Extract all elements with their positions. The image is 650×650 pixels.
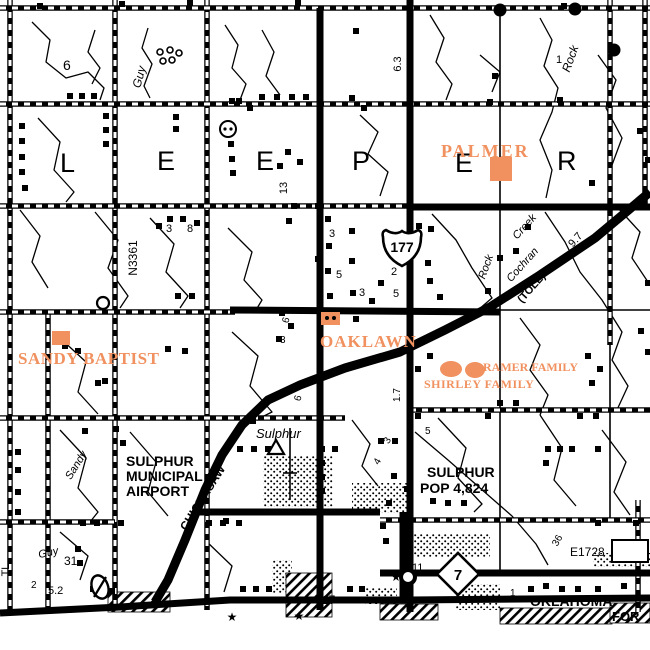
- creek-line: [262, 30, 280, 95]
- town-circle-icon: [97, 297, 109, 309]
- small-site-circle: [167, 47, 173, 53]
- building-square: [561, 3, 567, 9]
- map-label: Guy: [37, 545, 61, 561]
- map-label: Sandy: [63, 448, 90, 482]
- small-site-circle: [169, 57, 175, 63]
- poi-label-ramer-family: RAMER FAMILY: [483, 360, 578, 374]
- building-square: [15, 449, 21, 455]
- building-square: [621, 583, 627, 589]
- building-square: [380, 523, 386, 529]
- poi-marker-sandy-baptist: [52, 331, 70, 345]
- building-square: [82, 428, 88, 434]
- building-square: [223, 518, 229, 524]
- building-square: [297, 159, 303, 165]
- junction-dot: [608, 44, 621, 57]
- map-label: OKLAHOMA: [530, 593, 612, 609]
- building-square: [173, 114, 179, 120]
- star-icon: ★: [391, 570, 402, 584]
- building-square: [326, 243, 332, 249]
- building-square: [173, 126, 179, 132]
- building-square: [545, 446, 551, 452]
- building-square: [577, 413, 583, 419]
- building-square: [187, 0, 193, 6]
- building-square: [445, 500, 451, 506]
- map-label: 17: [322, 593, 336, 607]
- building-square: [430, 498, 436, 504]
- building-square: [428, 226, 434, 232]
- building-square: [361, 105, 367, 111]
- building-square: [113, 426, 119, 432]
- building-square: [274, 94, 280, 100]
- building-square: [427, 278, 433, 284]
- building-square: [291, 203, 297, 209]
- small-site-circle: [160, 58, 166, 64]
- building-square: [487, 99, 493, 105]
- building-square: [416, 223, 422, 229]
- building-square: [102, 378, 108, 384]
- building-square: [369, 298, 375, 304]
- building-square: [194, 220, 200, 226]
- building-square: [353, 316, 359, 322]
- building-square: [319, 460, 325, 466]
- building-square: [109, 588, 115, 594]
- junction-dot: [494, 4, 507, 17]
- building-square: [638, 328, 644, 334]
- building-square: [67, 93, 73, 99]
- hatched-area: [500, 608, 612, 624]
- building-square: [19, 138, 25, 144]
- building-square: [103, 113, 109, 119]
- building-square: [19, 169, 25, 175]
- building-square: [575, 586, 581, 592]
- township-letter: E: [157, 146, 175, 176]
- building-square: [22, 185, 28, 191]
- building-square: [485, 288, 491, 294]
- map-label: 3: [329, 228, 335, 240]
- building-square: [279, 310, 285, 316]
- township-letter: E: [256, 146, 274, 176]
- map-label: 3: [359, 287, 365, 299]
- building-square: [492, 73, 498, 79]
- site-outline-box: [612, 540, 648, 562]
- building-square: [359, 586, 365, 592]
- building-square: [332, 446, 338, 452]
- cemetery-dot: [223, 127, 226, 130]
- map-label: 8: [187, 223, 193, 235]
- building-square: [230, 170, 236, 176]
- building-square: [240, 586, 246, 592]
- building-square: [37, 3, 43, 9]
- map-label: N3361: [126, 240, 140, 276]
- cemetery-dot: [229, 127, 232, 130]
- map-label: Guy: [130, 64, 149, 90]
- building-square: [253, 586, 259, 592]
- map-label: TL: [0, 564, 12, 577]
- urban-area: [410, 533, 490, 557]
- building-square: [597, 366, 603, 372]
- building-square: [15, 467, 21, 473]
- building-square: [543, 583, 549, 589]
- building-square: [645, 349, 650, 355]
- map-canvas[interactable]: ★★★17776GuyRock16.31338N336135235RockCre…: [0, 0, 650, 650]
- building-square: [19, 154, 25, 160]
- map-label: 1: [556, 54, 562, 66]
- building-square: [415, 413, 421, 419]
- building-square: [250, 418, 256, 424]
- map-label: 6: [63, 57, 71, 73]
- map-label: Creek: [510, 212, 539, 242]
- building-square: [349, 258, 355, 264]
- township-letter: P: [352, 146, 370, 176]
- building-square: [182, 348, 188, 354]
- building-square: [75, 546, 81, 552]
- building-square: [247, 105, 253, 111]
- building-square: [386, 500, 392, 506]
- map-label: 6: [281, 316, 293, 325]
- junction-dot: [569, 3, 582, 16]
- building-square: [349, 95, 355, 101]
- building-square: [251, 446, 257, 452]
- building-square: [303, 94, 309, 100]
- building-square: [595, 586, 601, 592]
- map-label: E1728: [570, 545, 605, 559]
- poi-marker-shirley: [440, 361, 462, 377]
- cemetery-icon: [220, 121, 236, 137]
- building-square: [156, 223, 162, 229]
- poi-label-shirley-family: SHIRLEY FAMILY: [424, 377, 534, 391]
- map-label: 5.2: [48, 585, 63, 597]
- township-letter: L: [60, 148, 75, 178]
- building-square: [236, 98, 242, 104]
- building-square: [497, 400, 503, 406]
- building-square: [79, 93, 85, 99]
- building-square: [15, 489, 21, 495]
- small-site-circle: [157, 49, 163, 55]
- star-icon: ★: [294, 609, 305, 623]
- building-square: [569, 446, 575, 452]
- poi-label-sandy-baptist: SANDY BAPTIST: [18, 349, 160, 368]
- building-square: [319, 488, 325, 494]
- building-square: [19, 123, 25, 129]
- building-square: [637, 128, 643, 134]
- building-square: [528, 586, 534, 592]
- map-label: 5: [393, 288, 399, 300]
- building-square: [189, 293, 195, 299]
- building-square: [595, 446, 601, 452]
- creek-line: [20, 210, 48, 288]
- map-label: Rock: [559, 42, 582, 73]
- small-site-circle: [176, 50, 182, 56]
- building-square: [94, 520, 100, 526]
- building-square: [315, 256, 321, 262]
- building-square: [103, 141, 109, 147]
- map-label: 36: [550, 533, 565, 549]
- map-label: Rock: [476, 253, 496, 281]
- creek-line: [540, 18, 558, 198]
- poi-marker-dot: [325, 316, 329, 320]
- building-square: [286, 218, 292, 224]
- map-label: 2: [31, 580, 37, 591]
- star-icon: ★: [227, 610, 238, 624]
- building-square: [119, 1, 125, 7]
- road-paved: [230, 310, 500, 312]
- building-square: [589, 180, 595, 186]
- building-square: [236, 520, 242, 526]
- building-square: [15, 509, 21, 515]
- building-square: [277, 163, 283, 169]
- us-177-shield-number: 177: [390, 239, 414, 255]
- building-square: [353, 28, 359, 34]
- building-square: [427, 353, 433, 359]
- poi-marker-dot: [332, 316, 336, 320]
- map-label: 5: [336, 269, 342, 281]
- poi-label-oaklawn: OAKLAWN: [320, 332, 417, 351]
- building-square: [120, 440, 126, 446]
- map-label: SULPHUR: [126, 453, 194, 469]
- building-square: [228, 141, 234, 147]
- creek-line: [602, 430, 630, 515]
- building-square: [404, 486, 410, 492]
- map-label: 1: [510, 588, 516, 599]
- map-label: 1.7: [392, 388, 403, 402]
- building-square: [485, 413, 491, 419]
- building-square: [513, 248, 519, 254]
- building-square: [559, 586, 565, 592]
- poi-marker-oaklawn: [321, 312, 340, 325]
- building-square: [237, 446, 243, 452]
- building-square: [585, 353, 591, 359]
- building-square: [349, 228, 355, 234]
- building-square: [327, 293, 333, 299]
- poi-marker-ramer: [465, 362, 485, 378]
- map-label: SULPHUR: [427, 464, 495, 480]
- map-label: 6.3: [392, 56, 404, 71]
- map-label: 4: [372, 456, 385, 467]
- building-square: [347, 586, 353, 592]
- county-road-map[interactable]: ★★★17776GuyRock16.31338N336135235RockCre…: [0, 0, 650, 650]
- building-square: [557, 97, 563, 103]
- building-square: [461, 500, 467, 506]
- building-square: [415, 366, 421, 372]
- building-square: [543, 460, 549, 466]
- building-square: [593, 413, 599, 419]
- building-square: [91, 93, 97, 99]
- building-square: [383, 538, 389, 544]
- map-label: 2: [391, 266, 397, 278]
- creek-line: [228, 228, 262, 310]
- building-square: [378, 280, 384, 286]
- building-square: [425, 260, 431, 266]
- creek-line: [88, 30, 100, 84]
- building-square: [175, 293, 181, 299]
- ok-7-shield-number: 7: [454, 567, 462, 584]
- building-square: [437, 294, 443, 300]
- building-square: [325, 216, 331, 222]
- building-square: [319, 474, 325, 480]
- map-label: POP 4,824: [420, 480, 488, 496]
- building-square: [645, 157, 650, 163]
- map-label: 3: [280, 335, 286, 346]
- building-square: [118, 520, 124, 526]
- building-square: [229, 156, 235, 162]
- building-square: [165, 346, 171, 352]
- map-label: 13: [278, 182, 290, 194]
- building-square: [80, 520, 86, 526]
- map-label: FOR: [612, 609, 640, 624]
- building-square: [103, 127, 109, 133]
- creek-line: [352, 420, 378, 486]
- map-label: 5: [425, 426, 431, 437]
- building-square: [180, 216, 186, 222]
- map-label: 6: [293, 394, 305, 403]
- building-square: [325, 268, 331, 274]
- creek-line: [225, 25, 246, 100]
- building-square: [289, 94, 295, 100]
- map-label: Sulphur: [256, 426, 301, 441]
- building-square: [259, 94, 265, 100]
- building-square: [319, 446, 325, 452]
- poi-label-palmer: PALMER: [441, 141, 530, 161]
- building-square: [633, 520, 639, 526]
- creek-line: [430, 15, 452, 100]
- township-letter: R: [557, 146, 577, 176]
- map-label: MUNICIPAL: [126, 468, 203, 484]
- building-square: [95, 380, 101, 386]
- building-square: [589, 380, 595, 386]
- building-square: [645, 280, 650, 286]
- building-square: [77, 560, 83, 566]
- building-square: [295, 0, 301, 6]
- building-square: [497, 255, 503, 261]
- building-square: [391, 473, 397, 479]
- map-label: 11: [412, 562, 423, 574]
- building-square: [206, 520, 212, 526]
- building-square: [595, 520, 601, 526]
- building-square: [317, 230, 323, 236]
- creek-line: [95, 212, 128, 308]
- map-label: 3: [382, 435, 395, 446]
- map-label: AIRPORT: [126, 483, 189, 499]
- building-square: [285, 149, 291, 155]
- building-square: [167, 216, 173, 222]
- building-square: [266, 586, 272, 592]
- map-label: 31: [64, 554, 78, 568]
- building-square: [229, 98, 235, 104]
- building-square: [513, 400, 519, 406]
- building-square: [350, 290, 356, 296]
- building-square: [317, 281, 323, 287]
- building-square: [315, 203, 321, 209]
- map-label: 3: [166, 223, 172, 235]
- building-square: [557, 446, 563, 452]
